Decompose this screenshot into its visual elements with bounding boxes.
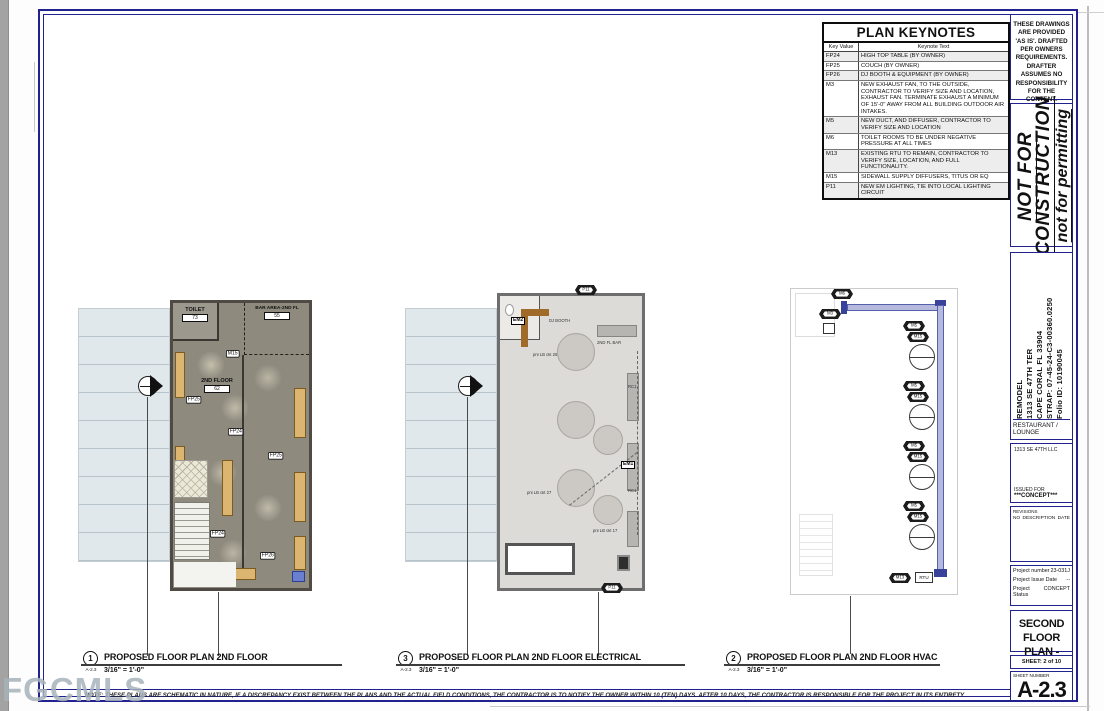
plan-label-title: PROPOSED FLOOR PLAN 2ND FLOOR HVAC: [747, 652, 937, 662]
revisions-date: DATE: [1058, 516, 1070, 521]
project-number-label: Project number: [1013, 568, 1050, 574]
dj-booth-equipment: [292, 571, 305, 582]
project-folio: Folio ID: 10190045: [1055, 259, 1064, 419]
bar-area-label: BAR AREA-2ND FL: [245, 306, 309, 311]
grey-couch: [597, 325, 637, 337]
keynote-hex-tag: M5: [903, 321, 925, 331]
table-circle: [557, 333, 595, 371]
plan-2nd-floor: TOILET 73 BAR AREA-2ND FL 55 2ND FLOOR 6…: [170, 300, 312, 591]
couch: [175, 352, 185, 398]
plan-label-ref: A-2.3: [395, 667, 417, 672]
couch: [294, 472, 306, 522]
section-line: [850, 596, 851, 654]
keynote-row: M13EXISTING RTU TO REMAIN, CONTRACTOR TO…: [824, 150, 1008, 173]
section-marker: [458, 376, 478, 396]
hex-label: M3: [823, 311, 837, 317]
keynote-key: M3: [824, 81, 859, 116]
titleblock-revisions-box: REVISIONS NO DESCRIPTION DATE: [1010, 506, 1073, 562]
status-label: Project Status: [1013, 586, 1044, 598]
keynotes-col-key: Key Value: [824, 43, 859, 51]
keynote-hex-tag: P11: [601, 583, 623, 593]
landing-hatch: [174, 460, 208, 498]
circuit-label: pnl LB ckt 25: [533, 353, 557, 357]
keynote-hex-tag: P11: [575, 285, 597, 295]
keynote-tag: FP24: [210, 530, 226, 537]
keynote-tag: FP25: [186, 396, 202, 403]
hex-label: M15: [911, 454, 925, 460]
project-address1: 1313 SE 47TH TER: [1025, 259, 1034, 419]
2nd-fl-bar-label: 2ND FL BAR: [597, 341, 621, 345]
receptacle-label: RC1: [628, 489, 636, 493]
plan-label-scale: 3/16" = 1'-0": [419, 667, 459, 674]
fgcmls-watermark: FGCMLS: [2, 671, 147, 709]
second-floor-label: 2ND FLOOR: [194, 378, 240, 384]
keynote-text: TOILET ROOMS TO BE UNDER NEGATIVE PRESSU…: [859, 134, 1008, 149]
diffuser-symbol: [909, 464, 935, 490]
keynote-row: M5NEW DUCT, AND DIFFUSER, CONTRACTOR TO …: [824, 117, 1008, 133]
plan-2nd-floor-hvac: M6 M3 M5 M15 M5 M15 M5 M15 M5 M15 M13 RT…: [790, 288, 958, 595]
bar-area-number: 55: [264, 312, 290, 320]
supply-duct-horizontal: [847, 304, 939, 311]
issue-date-row: Project Issue Date --: [1011, 575, 1072, 584]
toilet-label: TOILET: [173, 307, 217, 313]
diffuser-symbol: [909, 344, 935, 370]
hex-label: P11: [579, 287, 593, 293]
page-edge-top: [1078, 12, 1104, 13]
keynote-row: FP26DJ BOOTH & EQUIPMENT (BY OWNER): [824, 71, 1008, 81]
keynotes-title: PLAN KEYNOTES: [824, 24, 1008, 43]
keynote-text: NEW EXHAUST FAN, TO THE OUTSIDE, CONTRAC…: [859, 81, 1008, 116]
keynotes-table: PLAN KEYNOTES Key Value Keynote Text FP2…: [822, 22, 1010, 200]
plan-label-rule: [724, 664, 940, 666]
keynote-key: FP25: [824, 62, 859, 71]
keynote-hex-tag: M6: [831, 289, 853, 299]
titleblock-sheet-title-box: SECOND FLOOR PLAN - LOUNGE: [1010, 610, 1073, 652]
supply-duct-vertical: [937, 305, 944, 571]
exhaust-fan: [823, 323, 835, 334]
page-edge-left: [0, 0, 9, 711]
keynote-key: FP26: [824, 71, 859, 80]
project-number-value: 23-031J: [1051, 568, 1070, 574]
project-use: RESTAURANT / LOUNGE: [1013, 419, 1070, 436]
second-floor-room: 2ND FLOOR 62: [194, 378, 240, 393]
plan-label-rule: [396, 664, 685, 666]
em-fixture-tag: EM2: [511, 317, 525, 325]
keynote-text: EXISTING RTU TO REMAIN, CONTRACTOR TO VE…: [859, 150, 1008, 172]
toilet-number: 73: [182, 314, 208, 322]
roof-band-plan2: [405, 308, 497, 562]
titleblock-sheet-of-box: SHEET: 2 of 10: [1010, 655, 1073, 669]
titleblock-meta-box: Project number 23-031J Project Issue Dat…: [1010, 565, 1073, 606]
plan-label-title: PROPOSED FLOOR PLAN 2ND FLOOR ELECTRICAL: [419, 652, 641, 662]
section-line: [218, 592, 219, 656]
hex-label: M5: [907, 503, 921, 509]
keynote-text: DJ BOOTH & EQUIPMENT (BY OWNER): [859, 71, 1008, 80]
section-line: [598, 592, 599, 656]
hex-label: M5: [907, 443, 921, 449]
keynote-text: HIGH TOP TABLE (BY OWNER): [859, 52, 1008, 61]
sheet-number: A-2.3: [1011, 677, 1072, 703]
keynote-hex-tag: M15: [907, 452, 929, 462]
keynote-key: FP24: [824, 52, 859, 61]
not-for-construction-line2: CONSTRUCTION: [1033, 96, 1055, 255]
keynote-tag: M15: [226, 350, 239, 357]
toilet-room: TOILET 73: [173, 303, 219, 341]
dj-booth-label: DJ BOOTH: [549, 319, 570, 323]
plot-stamp-left: [34, 62, 35, 132]
keynote-tag: FP24: [228, 428, 244, 435]
circuit-label: pnl LB ckt 27: [527, 491, 551, 495]
couch: [222, 460, 233, 516]
keynote-key: M6: [824, 134, 859, 149]
hex-label: P11: [605, 585, 619, 591]
keynote-text: SIDEWALL SUPPLY DIFFUSERS, TITUS OR EQ: [859, 173, 1008, 182]
keynote-hex-tag: M3: [819, 309, 841, 319]
keynote-hex-tag: M5: [903, 441, 925, 451]
issued-value: ***CONCEPT***: [1014, 493, 1057, 499]
project-strap: STRAP: 07-45-24-C3-00360.0250: [1045, 259, 1054, 419]
keynote-row: P11NEW EM LIGHTING, TIE INTO LOCAL LIGHT…: [824, 183, 1008, 198]
section-line: [147, 397, 148, 656]
electrical-panel: [617, 555, 630, 571]
revisions-description: DESCRIPTION: [1022, 516, 1055, 521]
keynote-row: M6TOILET ROOMS TO BE UNDER NEGATIVE PRES…: [824, 134, 1008, 150]
keynote-row: FP24HIGH TOP TABLE (BY OWNER): [824, 52, 1008, 62]
section-marker: [138, 376, 158, 396]
revisions-label: REVISIONS: [1013, 509, 1038, 514]
owner-name: 1313 SE 47TH LLC: [1014, 447, 1057, 453]
circuit-dashed-line: [637, 351, 638, 535]
status-value: CONCEPT: [1044, 586, 1070, 598]
rtu-box: RTU: [915, 572, 933, 583]
project-name: REMODEL: [1015, 259, 1024, 419]
keynote-text: COUCH (BY OWNER): [859, 62, 1008, 71]
titleblock-nfc-box: NOT FOR CONSTRUCTION not for permitting: [1010, 103, 1073, 247]
titleblock-disclaimer-box: THESE DRAWINGS ARE PROVIDED 'AS IS'. DRA…: [1010, 14, 1073, 100]
keynote-row: M3NEW EXHAUST FAN, TO THE OUTSIDE, CONTR…: [824, 81, 1008, 117]
hex-label: M15: [911, 394, 925, 400]
bar-area: BAR AREA-2ND FL 55: [244, 303, 309, 355]
page-edge-bottom: [490, 706, 1090, 707]
project-address2: CAPE CORAL FL 33904: [1035, 259, 1044, 419]
revisions-no: NO: [1013, 516, 1020, 521]
open-area: [174, 562, 236, 587]
bar-counter: [521, 309, 549, 316]
plan-label-rule: [81, 664, 342, 666]
keynote-text: NEW EM LIGHTING, TIE INTO LOCAL LIGHTING…: [859, 183, 1008, 198]
sheet-title-line1: SECOND FLOOR: [1011, 618, 1072, 646]
table-circle: [593, 495, 623, 525]
second-floor-number: 62: [204, 385, 230, 393]
plan-label-scale: 3/16" = 1'-0": [747, 667, 787, 674]
keynote-row: FP25COUCH (BY OWNER): [824, 62, 1008, 72]
hex-label: M15: [911, 514, 925, 520]
titleblock-sheet-number-box: SHEET NUMBER A-2.3: [1010, 671, 1073, 701]
keynote-hex-tag: M5: [903, 501, 925, 511]
hex-label: M15: [911, 334, 925, 340]
toilet-fixture: [505, 304, 514, 316]
not-for-permitting: not for permitting: [1054, 109, 1072, 242]
faint-stairs: [799, 514, 833, 576]
duct-cap: [934, 569, 947, 577]
plan-label-title: PROPOSED FLOOR PLAN 2ND FLOOR: [104, 652, 268, 662]
status-row: Project Status CONCEPT: [1011, 584, 1072, 599]
hex-label: M5: [907, 323, 921, 329]
issued-for: ISSUED FOR ***CONCEPT***: [1014, 487, 1072, 499]
hex-label: M6: [835, 291, 849, 297]
interior-wall: [242, 355, 244, 571]
page-edge-right: [1087, 6, 1089, 711]
plan-label-ref: A-2.3: [723, 667, 745, 672]
table-circle: [557, 401, 595, 439]
issue-date-value: --: [1066, 577, 1070, 583]
hex-label: M13: [893, 575, 907, 581]
em-fixture-tag: EM1: [621, 461, 635, 469]
project-number-row: Project number 23-031J: [1011, 566, 1072, 575]
table-circle: [593, 425, 623, 455]
keynotes-header: Key Value Keynote Text: [824, 43, 1008, 52]
keynote-tag: FP26: [260, 552, 276, 559]
keynote-hex-tag: M13: [889, 573, 911, 583]
section-line: [467, 397, 468, 656]
schematic-note: NOTE: THESE PLANS ARE SCHEMATIC IN NATUR…: [85, 693, 966, 699]
keynote-hex-tag: M15: [907, 512, 929, 522]
circuit-label: pnl LB ckt 17: [593, 529, 617, 533]
stairs: [174, 502, 210, 560]
keynote-hex-tag: M15: [907, 392, 929, 402]
titleblock-project-box: REMODEL 1313 SE 47TH TER CAPE CORAL FL 3…: [1010, 252, 1073, 440]
keynote-key: M15: [824, 173, 859, 182]
hex-label: M5: [907, 383, 921, 389]
keynote-hex-tag: M5: [903, 381, 925, 391]
note-bar: NOTE: THESE PLANS ARE SCHEMATIC IN NATUR…: [40, 689, 1010, 702]
revisions-header: NO DESCRIPTION DATE: [1013, 516, 1070, 521]
keynote-row: M15SIDEWALL SUPPLY DIFFUSERS, TITUS OR E…: [824, 173, 1008, 183]
couch: [294, 536, 306, 570]
keynote-key: M5: [824, 117, 859, 132]
roof-band-plan1: [78, 308, 170, 562]
keynote-key: M13: [824, 150, 859, 172]
titleblock-owner-box: 1313 SE 47TH LLC ISSUED FOR ***CONCEPT**…: [1010, 443, 1073, 503]
receptacle-label: RC1: [628, 385, 636, 389]
sheet-of: SHEET: 2 of 10: [1011, 656, 1072, 665]
keynote-tag: FP25: [268, 452, 284, 459]
keynote-text: NEW DUCT, AND DIFFUSER, CONTRACTOR TO VE…: [859, 117, 1008, 132]
stage: [505, 543, 575, 575]
couch: [294, 388, 306, 438]
diffuser-symbol: [909, 404, 935, 430]
diffuser-symbol: [909, 524, 935, 550]
plan-2nd-floor-electrical: DJ BOOTH 2ND FL BAR EM2 EM1 RC1 RC1 pnl …: [497, 293, 645, 591]
keynote-key: P11: [824, 183, 859, 198]
keynotes-col-text: Keynote Text: [859, 43, 1008, 51]
issue-date-label: Project Issue Date: [1013, 577, 1057, 583]
keynote-hex-tag: M15: [907, 332, 929, 342]
